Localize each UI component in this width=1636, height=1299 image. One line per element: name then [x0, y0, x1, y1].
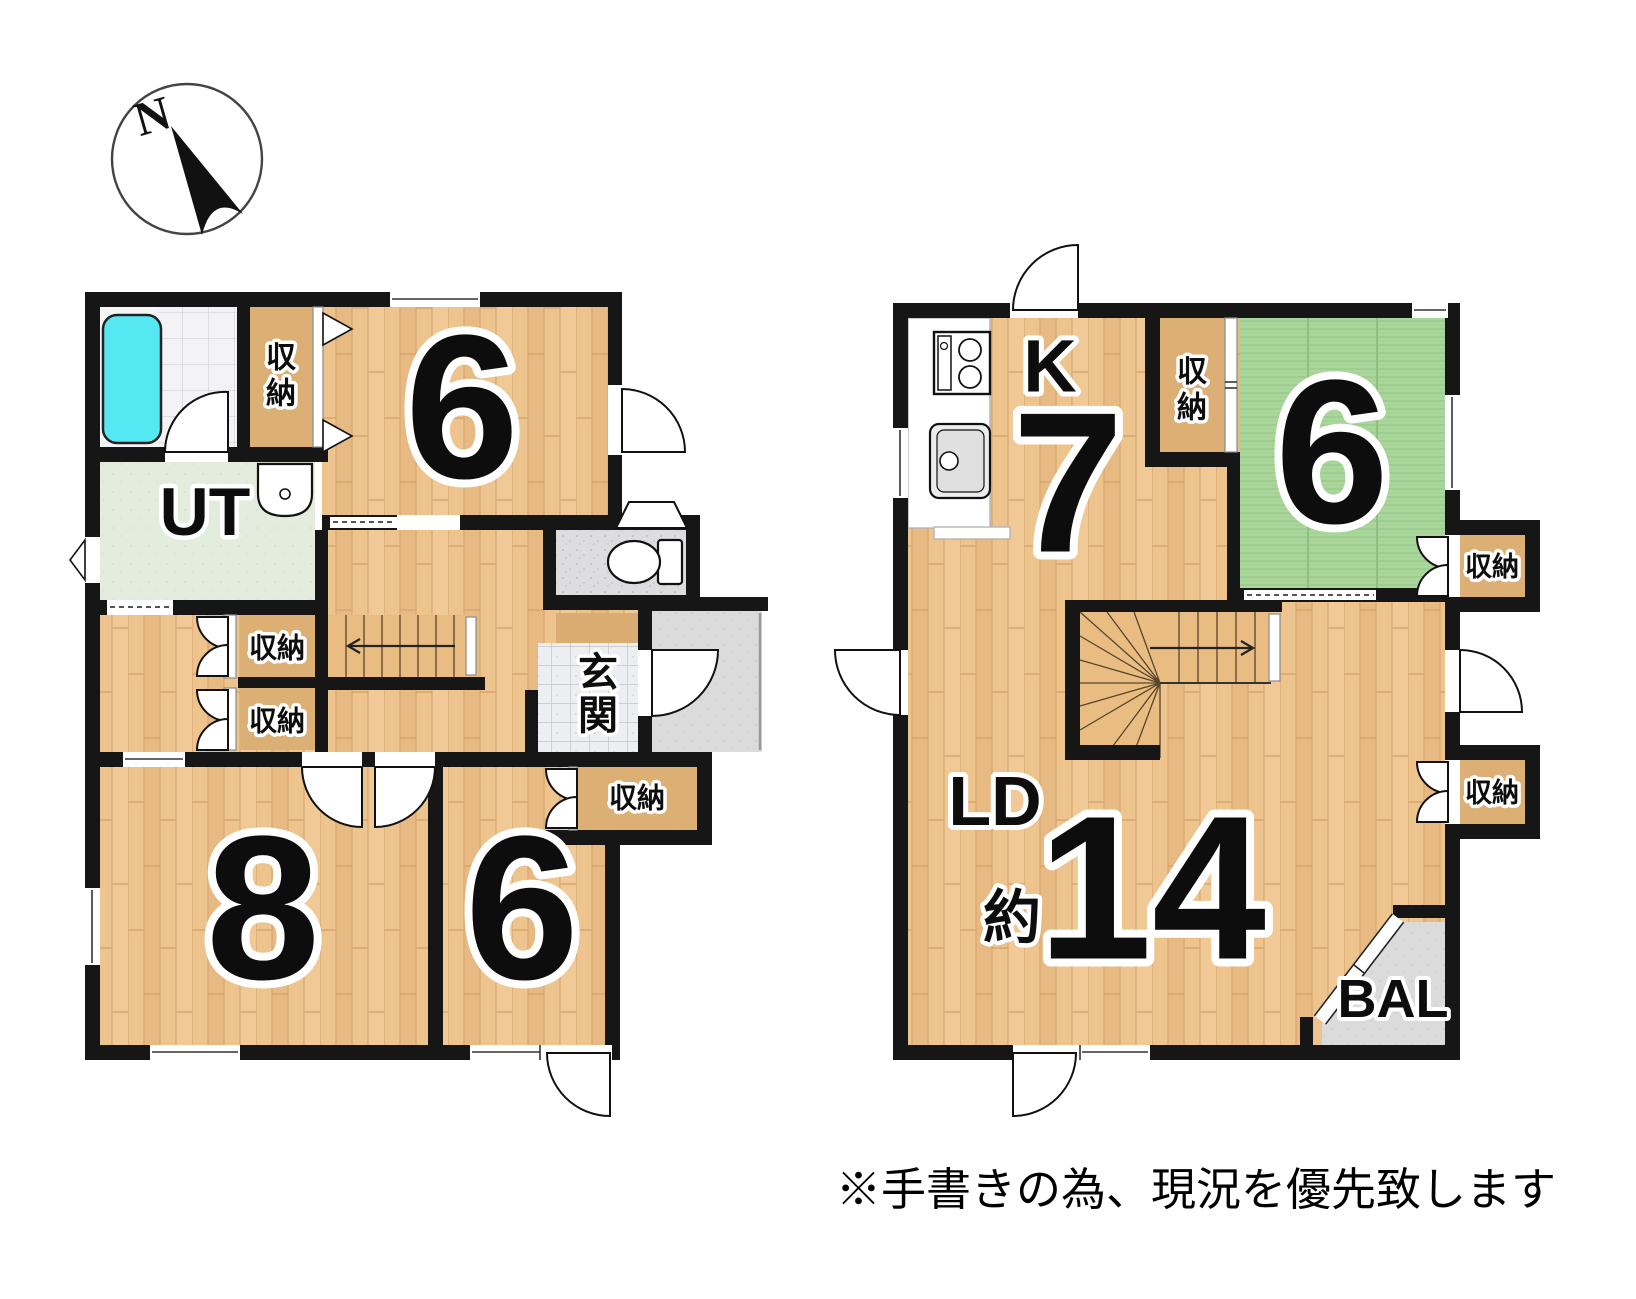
bedroom-right-size: 6 [465, 794, 579, 1023]
closet-label: 収納 [249, 705, 305, 737]
stove [934, 332, 990, 394]
closet-label: 収 [1177, 356, 1208, 389]
floorplan-drawing: N [0, 0, 1636, 1299]
toilet [608, 540, 682, 584]
bedroom-right-exterior-door [547, 1053, 610, 1116]
disclaimer-note: ※手書きの為、現況を優先致します [836, 1164, 1556, 1215]
utility-label: UT [160, 474, 251, 550]
closet-label: 収納 [249, 632, 305, 664]
tatami-size: 6 [1275, 338, 1389, 567]
living-exterior-door-left [835, 650, 900, 715]
living-exterior-door-bottom [1013, 1053, 1076, 1116]
closet-label: 納 [1177, 392, 1207, 425]
kitchen-exterior-door [1013, 245, 1078, 310]
entrance-step [556, 613, 650, 643]
kitchen-size: 7 [1012, 372, 1123, 595]
bedroom-left-size: 8 [206, 794, 320, 1023]
closet-label: 納 [266, 378, 296, 411]
compass: N [112, 84, 262, 235]
closet-label: 収 [266, 342, 297, 375]
entrance-label: 玄 [578, 651, 618, 695]
approx-label: 約 [983, 886, 1041, 951]
entrance-label: 関 [578, 694, 618, 738]
balcony-label: BAL [1338, 969, 1449, 1029]
floor1-plan: 6 8 6 UT 収 納 収納 収納 収納 玄 関 [70, 292, 768, 1116]
bay-window-icon [616, 502, 687, 528]
vent-triangle-icon [70, 540, 85, 580]
bathtub [103, 315, 161, 443]
closet-label: 収納 [1465, 777, 1519, 808]
closet-label: 収納 [1465, 551, 1519, 582]
living-label: LD [948, 762, 1041, 840]
kitchen-sink [930, 424, 990, 498]
corridor-exterior-door-right [1460, 650, 1522, 712]
bedroom-top-exterior-door [622, 389, 685, 452]
staircase-1f [328, 615, 476, 677]
floor2-plan: K 7 収 納 6 収納 収納 LD 約 14 BAL [835, 245, 1540, 1116]
living-size: 14 [1038, 774, 1266, 1003]
washbasin [258, 464, 312, 516]
floorplan-page: N [0, 0, 1636, 1299]
bedroom-top-size: 6 [405, 293, 519, 522]
closet-label: 収納 [609, 782, 665, 814]
